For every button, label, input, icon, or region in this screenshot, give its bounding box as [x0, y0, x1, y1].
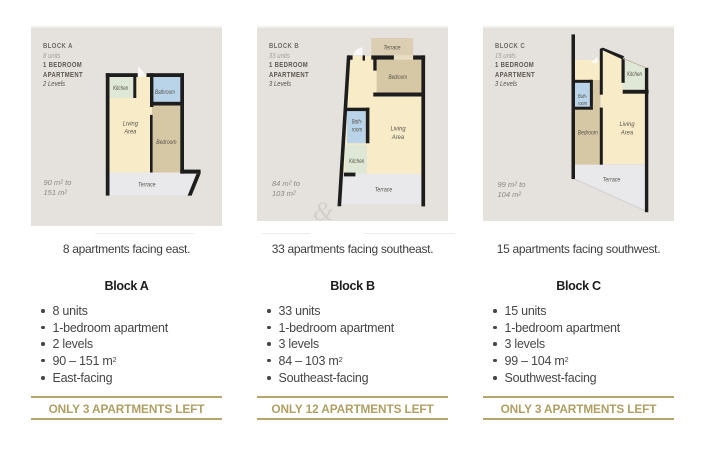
svg-text:Bath-: Bath-	[352, 119, 363, 126]
svg-text:Living: Living	[390, 126, 405, 133]
svg-text:Terrace: Terrace	[384, 45, 401, 52]
svg-text:room: room	[352, 127, 363, 134]
svg-text:Area: Area	[123, 128, 136, 135]
svg-text:Living: Living	[123, 121, 138, 128]
svg-text:Bath-: Bath-	[578, 94, 587, 100]
svg-text:Kitchen: Kitchen	[113, 85, 128, 92]
svg-text:Bathroom: Bathroom	[155, 89, 175, 96]
svg-text:Kitchen: Kitchen	[627, 71, 642, 78]
svg-text:Bedroom: Bedroom	[389, 74, 408, 81]
svg-text:Area: Area	[620, 130, 633, 137]
svg-text:Terrace: Terrace	[138, 182, 156, 189]
svg-text:Terrace: Terrace	[603, 176, 621, 183]
svg-text:room: room	[578, 101, 587, 107]
svg-text:Area: Area	[391, 134, 404, 141]
svg-text:Kitchen: Kitchen	[349, 158, 365, 165]
svg-text:Bedroom: Bedroom	[578, 130, 598, 137]
svg-text:Bedroom: Bedroom	[156, 139, 177, 146]
svg-text:Living: Living	[619, 121, 634, 128]
svg-text:Terrace: Terrace	[375, 187, 393, 194]
